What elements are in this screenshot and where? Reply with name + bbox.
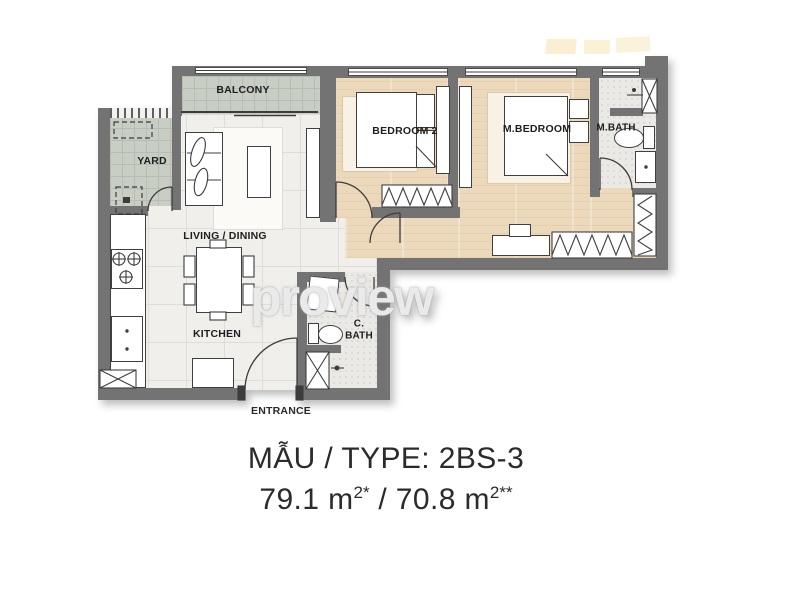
cooktop [111,249,143,289]
room-label-yard: YARD [137,155,167,167]
room-label-kitchen: KITCHEN [193,328,241,340]
window [348,68,448,76]
pillow [569,99,589,119]
area-sup-1: 2* [354,483,370,502]
area-value-1: 79.1 m [259,483,353,516]
kitchen-sink [111,316,143,362]
window [465,68,577,76]
wall [172,116,181,210]
wall [98,388,245,400]
window [602,68,640,76]
caption-type-line: MẪU / TYPE: 2BS-3 [0,442,772,476]
wall [98,108,110,400]
caption-area-line: 79.1 m2* / 70.8 m2** [0,476,772,517]
area-sup-2: 2** [490,483,513,502]
desk [492,235,550,256]
bath-sink [635,151,656,183]
common-bath-line2: BATH [345,330,373,342]
room-label-bedroom2: BEDROOM 2 [372,125,437,137]
wall [656,56,668,270]
wall [297,388,390,400]
wall [303,345,341,353]
floor-plan-page: BALCONY YARD LIVING / DINING KITCHEN BED… [0,0,800,600]
pillow [416,94,435,128]
wall [320,66,336,222]
yard-vent-wall [110,108,172,118]
kitchen-cabinet [192,358,234,388]
hall-floor [345,218,458,258]
room-label-living-dining: LIVING / DINING [183,230,267,242]
wall [610,108,643,116]
dining-table [196,247,242,313]
wardrobe-nook-floor [590,188,657,258]
coffee-table [247,146,271,198]
caption: MẪU / TYPE: 2BS-3 79.1 m2* / 70.8 m2** [0,442,772,517]
watermark: proview [250,268,433,328]
area-value-2: / 70.8 m [370,483,490,516]
window [195,67,307,74]
tv-cabinet [306,128,320,218]
room-label-entrance: ENTRANCE [251,405,311,417]
side-cabinet [459,86,472,188]
wall [372,207,460,218]
bed-master [504,96,568,176]
headboard [436,86,450,174]
wall [172,66,182,116]
wall [632,188,657,197]
pillow [569,121,589,143]
room-label-master-bath: M.BATH [596,122,635,134]
wall [590,188,600,197]
sofa [185,132,223,206]
room-label-balcony: BALCONY [216,84,269,96]
room-label-master-bedroom: M.BEDROOM [503,123,571,135]
toilet-tank [643,126,655,149]
desk-chair [509,224,531,237]
